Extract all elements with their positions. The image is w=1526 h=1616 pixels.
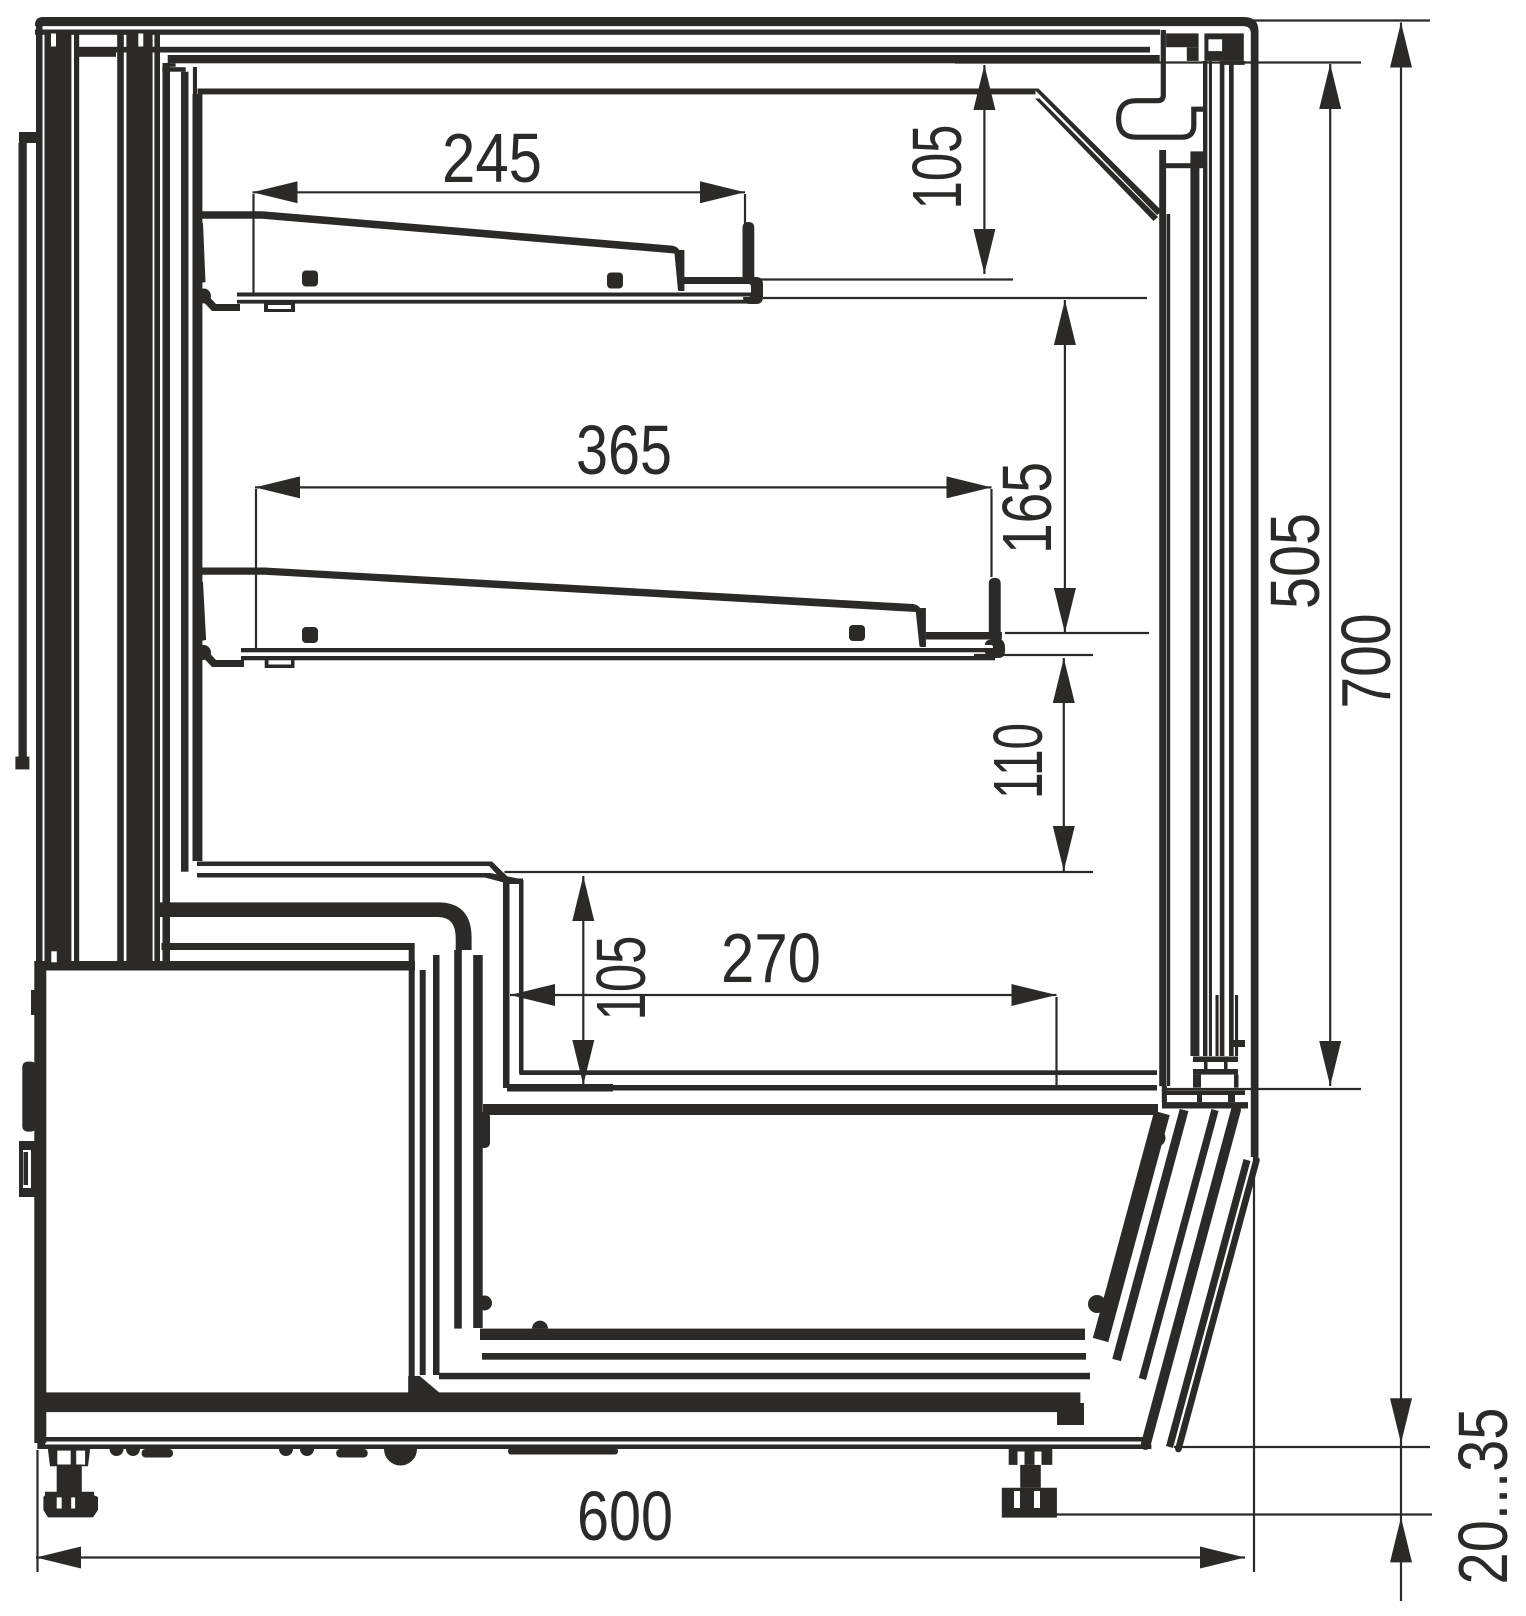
svg-text:700: 700 — [1327, 614, 1405, 709]
svg-text:20...35: 20...35 — [1444, 1408, 1522, 1585]
svg-text:365: 365 — [576, 411, 672, 489]
svg-text:270: 270 — [721, 919, 821, 997]
svg-text:105: 105 — [898, 125, 976, 210]
svg-text:505: 505 — [1256, 513, 1334, 609]
svg-text:110: 110 — [979, 723, 1057, 799]
svg-text:600: 600 — [577, 1477, 673, 1555]
svg-text:245: 245 — [442, 119, 542, 197]
svg-text:165: 165 — [988, 462, 1066, 554]
svg-text:105: 105 — [582, 936, 660, 1021]
